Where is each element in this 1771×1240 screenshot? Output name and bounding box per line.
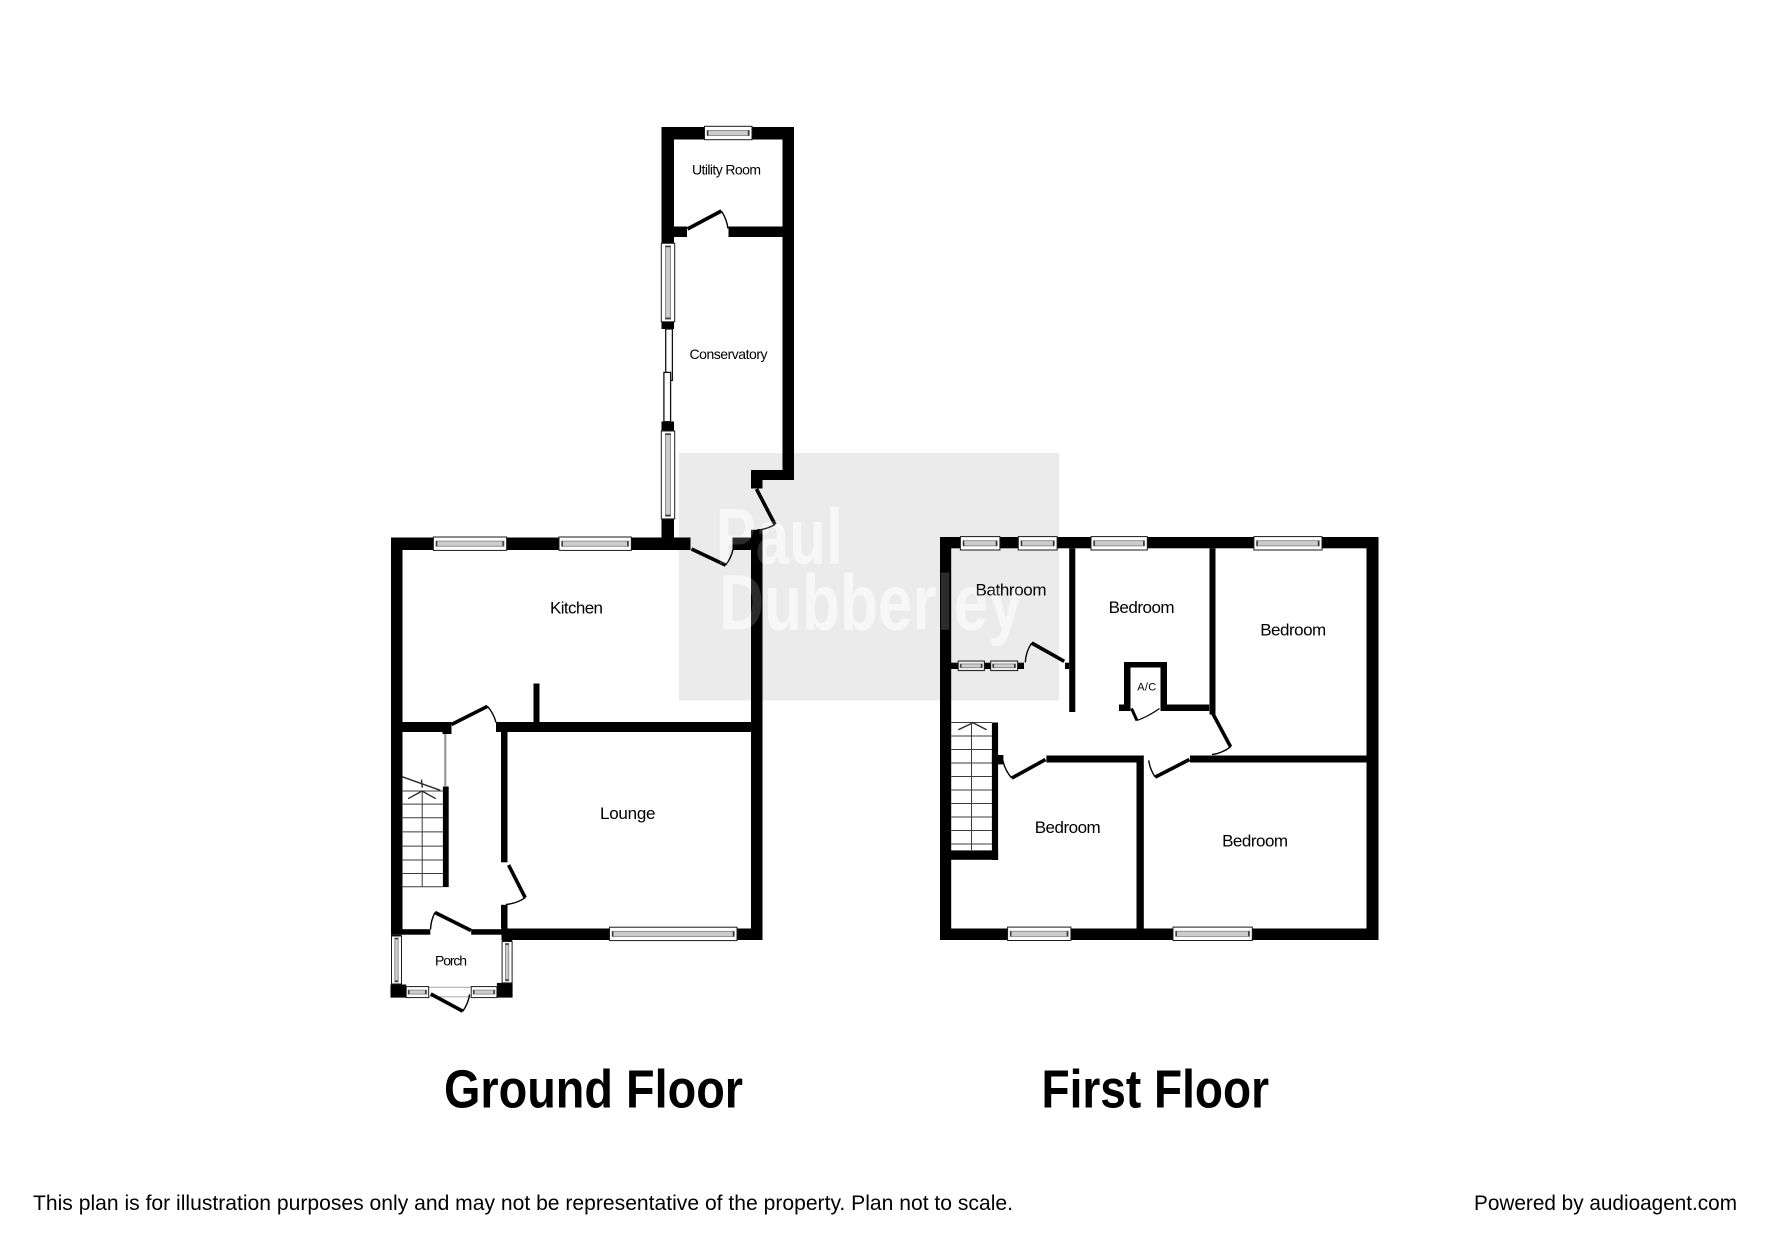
svg-text:Bedroom: Bedroom	[1222, 832, 1288, 851]
svg-text:Bedroom: Bedroom	[1035, 818, 1101, 837]
svg-text:Utility Room: Utility Room	[692, 162, 761, 178]
svg-text:A/C: A/C	[1137, 682, 1156, 694]
svg-text:This plan is for illustration: This plan is for illustration purposes o…	[33, 1192, 1013, 1215]
svg-text:Bedroom: Bedroom	[1260, 620, 1326, 639]
svg-text:Conservatory: Conservatory	[690, 346, 768, 362]
svg-text:Powered by audioagent.com: Powered by audioagent.com	[1474, 1192, 1737, 1215]
svg-text:Bedroom: Bedroom	[1109, 598, 1175, 617]
svg-text:Porch: Porch	[435, 952, 467, 968]
svg-text:Kitchen: Kitchen	[550, 598, 603, 617]
svg-text:Lounge: Lounge	[600, 804, 656, 823]
svg-text:Dubberley: Dubberley	[719, 558, 1023, 647]
svg-text:First Floor: First Floor	[1042, 1060, 1270, 1120]
svg-text:Ground Floor: Ground Floor	[444, 1060, 743, 1120]
